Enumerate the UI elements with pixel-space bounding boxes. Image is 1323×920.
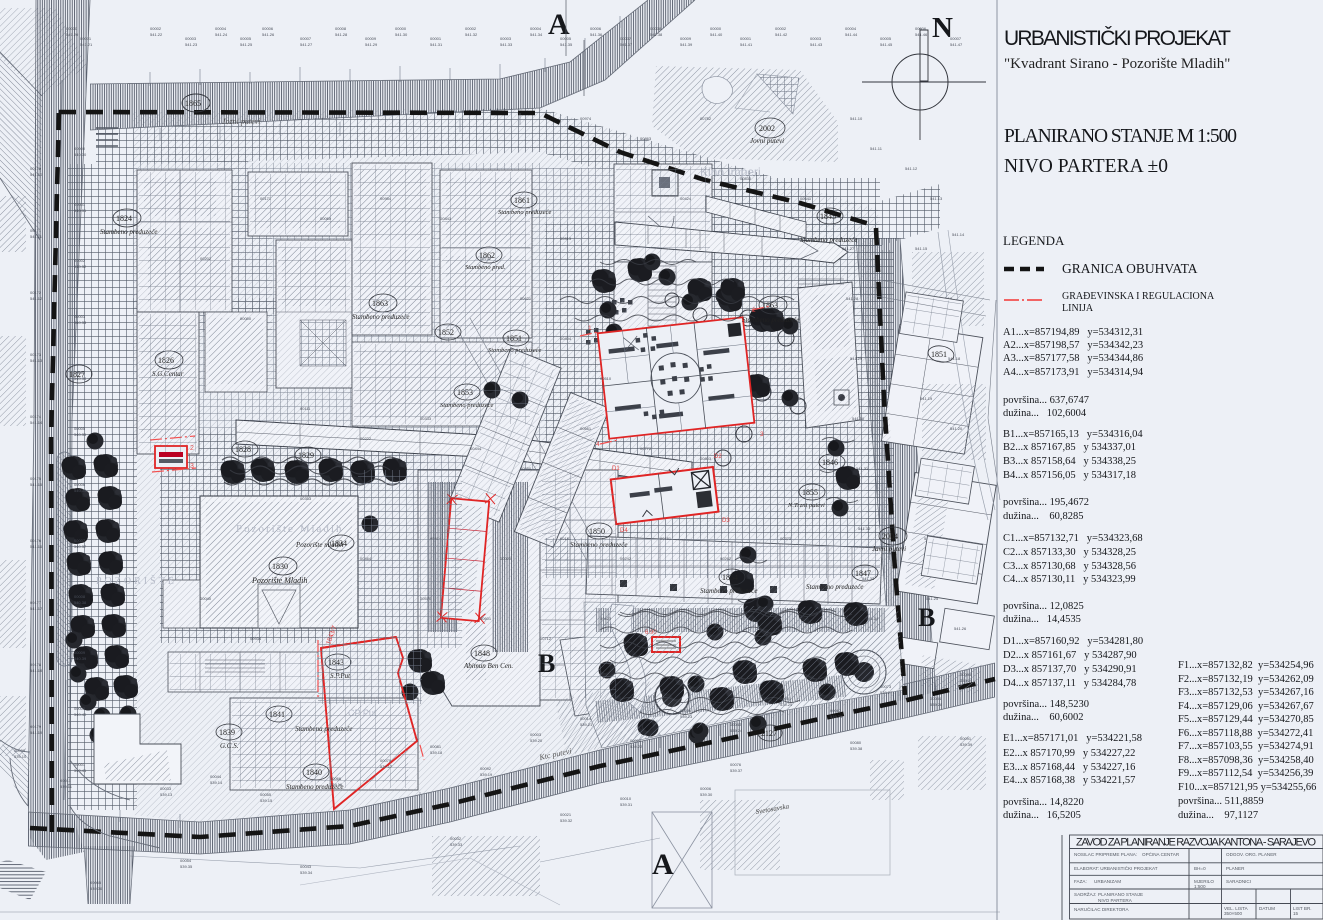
- svg-text:541.27: 541.27: [842, 246, 855, 251]
- svg-text:2004: 2004: [882, 532, 898, 541]
- svg-text:Stambeno preduzeće: Stambeno preduzeće: [742, 316, 799, 324]
- svg-text:00008: 00008: [650, 26, 662, 31]
- svg-text:3: 3: [760, 431, 764, 438]
- svg-text:00076: 00076: [730, 762, 742, 767]
- svg-text:00173: 00173: [30, 352, 42, 357]
- svg-text:1846: 1846: [822, 458, 838, 467]
- svg-text:00040: 00040: [200, 596, 212, 601]
- svg-text:DATUM: DATUM: [1259, 906, 1275, 911]
- svg-text:541.29: 541.29: [365, 42, 378, 47]
- svg-text:539.32: 539.32: [560, 818, 573, 823]
- svg-text:00004: 00004: [215, 26, 227, 31]
- svg-text:00178: 00178: [30, 662, 42, 667]
- svg-text:D3: D3: [722, 518, 730, 524]
- svg-text:539.21: 539.21: [580, 722, 593, 727]
- svg-text:00550: 00550: [520, 466, 532, 471]
- svg-text:površina... 637,6747: površina... 637,6747: [1003, 395, 1089, 406]
- svg-text:PLANIRANO STANJE M 1:500: PLANIRANO STANJE M 1:500: [1004, 126, 1237, 147]
- svg-text:539.39: 539.39: [960, 742, 973, 747]
- svg-text:F10...x=857121,95 y=534255,66: F10...x=857121,95 y=534255,66: [1178, 782, 1316, 793]
- svg-text:B3...x 857158,64 y 534338,25: B3...x 857158,64 y 534338,25: [1003, 456, 1136, 467]
- svg-text:"Kvadrant Sirano - Pozorište M: "Kvadrant Sirano - Pozorište Mladih": [1004, 56, 1230, 72]
- svg-text:00006: 00006: [262, 26, 274, 31]
- svg-text:539.30: 539.30: [700, 792, 713, 797]
- svg-text:LINIJA: LINIJA: [1062, 303, 1094, 314]
- svg-text:541.22: 541.22: [150, 32, 163, 37]
- svg-text:541.10: 541.10: [850, 116, 863, 121]
- svg-text:00171: 00171: [30, 228, 42, 233]
- svg-text:00005: 00005: [74, 426, 86, 431]
- svg-text:541.11: 541.11: [30, 234, 43, 239]
- svg-text:00001: 00001: [430, 36, 442, 41]
- svg-text:SARADNICI: SARADNICI: [1226, 879, 1251, 884]
- svg-text:539.34: 539.34: [300, 870, 313, 875]
- svg-text:00974: 00974: [580, 116, 592, 121]
- svg-text:PLANIRANO STANJE: PLANIRANO STANJE: [1098, 892, 1143, 897]
- svg-text:00008: 00008: [335, 26, 347, 31]
- svg-text:541.35: 541.35: [560, 42, 573, 47]
- svg-text:00007: 00007: [620, 36, 632, 41]
- svg-text:541.26: 541.26: [954, 626, 967, 631]
- svg-text:541.13: 541.13: [930, 196, 943, 201]
- svg-text:FAZA:: FAZA:: [1074, 879, 1087, 884]
- svg-text:Jovni putevi: Jovni putevi: [750, 137, 784, 145]
- svg-text:00009: 00009: [74, 650, 86, 655]
- svg-text:00000: 00000: [240, 316, 252, 321]
- svg-text:B4...x 857156,05 y 534317,18: B4...x 857156,05 y 534317,18: [1003, 470, 1136, 481]
- svg-text:00151: 00151: [660, 536, 672, 541]
- svg-text:541.13: 541.13: [30, 358, 43, 363]
- svg-text:539.24: 539.24: [730, 728, 743, 733]
- svg-text:1848: 1848: [474, 649, 490, 658]
- svg-text:1834: 1834: [331, 539, 347, 548]
- svg-text:B2...x 857167,85 y 534337,01: B2...x 857167,85 y 534337,01: [1003, 442, 1136, 453]
- svg-text:539.19: 539.19: [480, 772, 493, 777]
- svg-text:00003: 00003: [185, 36, 197, 41]
- svg-text:C4...x 857130,11 y 534323,99: C4...x 857130,11 y 534323,99: [1003, 574, 1136, 585]
- svg-text:00641: 00641: [800, 196, 812, 201]
- svg-text:541.27: 541.27: [300, 42, 313, 47]
- svg-text:E3...x 857168,44 y 534227,16: E3...x 857168,44 y 534227,16: [1003, 762, 1135, 773]
- svg-text:GRAĐEVINSKA I REGULACIONA: GRAĐEVINSKA I REGULACIONA: [1062, 291, 1215, 302]
- svg-text:00005: 00005: [560, 36, 572, 41]
- svg-text:F5...x=857129,44 y=534270,85: F5...x=857129,44 y=534270,85: [1178, 714, 1314, 725]
- svg-text:00444: 00444: [470, 446, 482, 451]
- svg-text:1:500: 1:500: [1194, 884, 1206, 889]
- svg-text:F9...x=857112,54 y=534256,39: F9...x=857112,54 y=534256,39: [1178, 768, 1313, 779]
- svg-text:541.15: 541.15: [915, 246, 928, 251]
- svg-text:F2...x=857132,19 y=534262,09: F2...x=857132,19 y=534262,09: [1178, 674, 1314, 685]
- svg-text:541.37: 541.37: [620, 42, 633, 47]
- svg-text:00002: 00002: [74, 258, 86, 263]
- svg-text:NARUČILAC DIREKTORA: NARUČILAC DIREKTORA: [1074, 906, 1129, 912]
- svg-text:539.14: 539.14: [210, 780, 223, 785]
- svg-text:541.28: 541.28: [846, 296, 859, 301]
- svg-text:površina... 14,8220: površina... 14,8220: [1003, 797, 1084, 808]
- svg-text:00863: 00863: [640, 136, 652, 141]
- svg-text:00000: 00000: [74, 146, 86, 151]
- svg-text:00080: 00080: [850, 740, 862, 745]
- svg-text:4: 4: [596, 441, 600, 448]
- svg-text:00055: 00055: [260, 792, 272, 797]
- svg-text:00222: 00222: [360, 436, 372, 441]
- svg-text:00002: 00002: [150, 26, 162, 31]
- svg-text:539.33: 539.33: [450, 842, 463, 847]
- svg-text:540.39: 540.39: [74, 656, 87, 661]
- svg-text:Stambeno preduzeće: Stambeno preduzeće: [800, 236, 857, 244]
- svg-text:ELABORAT: URBANISTIČKI PROJEK: ELABORAT: URBANISTIČKI PROJEKAT: [1074, 865, 1158, 871]
- svg-text:F1...x=857132,82 y=534254,96: F1...x=857132,82 y=534254,96: [1178, 660, 1314, 671]
- svg-text:00011: 00011: [60, 778, 72, 783]
- svg-text:Abimun Ben Cen.: Abimun Ben Cen.: [463, 662, 513, 670]
- svg-text:2002: 2002: [759, 124, 775, 133]
- svg-text:OPĆINA CENTAR: OPĆINA CENTAR: [1142, 851, 1180, 857]
- svg-text:540.36: 540.36: [74, 488, 87, 493]
- svg-text:00006: 00006: [700, 786, 712, 791]
- svg-text:541.33: 541.33: [500, 42, 513, 47]
- svg-text:541.42: 541.42: [775, 32, 788, 37]
- svg-text:00000: 00000: [710, 26, 722, 31]
- svg-text:541.39: 541.39: [680, 42, 693, 47]
- svg-text:541.24: 541.24: [215, 32, 228, 37]
- svg-text:površina... 195,4672: površina... 195,4672: [1003, 497, 1089, 508]
- svg-text:dužina... 14,4535: dužina... 14,4535: [1003, 614, 1081, 625]
- svg-text:541.20: 541.20: [66, 32, 79, 37]
- svg-text:00003: 00003: [74, 314, 86, 319]
- svg-text:00000: 00000: [66, 26, 78, 31]
- svg-text:D2...x 857161,67 y 534287,90: D2...x 857161,67 y 534287,90: [1003, 650, 1137, 661]
- svg-text:541.11: 541.11: [870, 146, 883, 151]
- svg-text:00001: 00001: [740, 36, 752, 41]
- svg-text:541.25: 541.25: [926, 596, 939, 601]
- svg-text:dužina... 102,6004: dužina... 102,6004: [1003, 408, 1087, 419]
- svg-text:541.14: 541.14: [30, 420, 43, 425]
- svg-text:541.44: 541.44: [845, 32, 858, 37]
- svg-text:1851: 1851: [931, 350, 947, 359]
- svg-text:00003: 00003: [810, 36, 822, 41]
- svg-text:PLANER: PLANER: [1226, 866, 1245, 871]
- svg-text:površina... 511,8859: površina... 511,8859: [1178, 796, 1264, 807]
- svg-text:539.37: 539.37: [730, 768, 743, 773]
- svg-text:B1...x=857165,13 y=534316,04: B1...x=857165,13 y=534316,04: [1003, 429, 1143, 440]
- svg-text:00006: 00006: [915, 26, 927, 31]
- svg-text:541.32: 541.32: [858, 526, 871, 531]
- svg-text:1854: 1854: [722, 573, 738, 582]
- svg-text:00373: 00373: [780, 536, 792, 541]
- svg-text:00009: 00009: [365, 36, 377, 41]
- svg-text:00033: 00033: [160, 786, 172, 791]
- svg-text:NIVO PARTERA: NIVO PARTERA: [1098, 898, 1133, 903]
- svg-text:541.25: 541.25: [240, 42, 253, 47]
- svg-text:1845: 1845: [820, 212, 836, 221]
- svg-text:00772: 00772: [640, 446, 652, 451]
- svg-text:539.31: 539.31: [620, 802, 633, 807]
- svg-text:541.46: 541.46: [915, 32, 928, 37]
- svg-text:00111: 00111: [300, 406, 311, 411]
- svg-text:D1: D1: [612, 466, 620, 472]
- svg-text:540.33: 540.33: [74, 320, 87, 325]
- svg-text:00054: 00054: [180, 858, 192, 863]
- svg-text:dužina... 60,6002: dužina... 60,6002: [1003, 712, 1084, 723]
- svg-text:541.12: 541.12: [905, 166, 918, 171]
- svg-text:00000: 00000: [74, 706, 86, 711]
- svg-text:površina... 148,5230: površina... 148,5230: [1003, 699, 1089, 710]
- svg-text:539.15: 539.15: [260, 798, 273, 803]
- svg-text:541.18: 541.18: [948, 356, 961, 361]
- svg-text:00353: 00353: [300, 496, 312, 501]
- svg-text:00084: 00084: [930, 696, 942, 701]
- svg-text:00092: 00092: [480, 766, 492, 771]
- svg-text:541.14: 541.14: [952, 232, 965, 237]
- svg-text:Javni putevi: Javni putevi: [872, 545, 906, 553]
- svg-text:00005: 00005: [240, 36, 252, 41]
- svg-text:00007: 00007: [950, 36, 962, 41]
- svg-text:00661: 00661: [580, 426, 592, 431]
- svg-text:540.38: 540.38: [74, 600, 87, 605]
- svg-text:D2: D2: [714, 454, 722, 460]
- svg-text:A1...x=857194,89 y=534312,31: A1...x=857194,89 y=534312,31: [1003, 327, 1143, 338]
- svg-text:A4...x=857173,91 y=534314,94: A4...x=857173,91 y=534314,94: [1003, 367, 1144, 378]
- svg-text:541.26: 541.26: [262, 32, 275, 37]
- svg-text:C1...x=857132,71 y=534323,68: C1...x=857132,71 y=534323,68: [1003, 533, 1143, 544]
- svg-text:00006: 00006: [74, 482, 86, 487]
- svg-text:dužina... 16,5205: dužina... 16,5205: [1003, 810, 1081, 821]
- svg-text:541.19: 541.19: [30, 730, 43, 735]
- svg-text:00000: 00000: [395, 26, 407, 31]
- svg-text:539.38: 539.38: [850, 746, 863, 751]
- svg-text:2: 2: [752, 307, 756, 314]
- svg-text:541.20: 541.20: [950, 426, 963, 431]
- svg-text:D4...x 857137,11 y 534284,78: D4...x 857137,11 y 534284,78: [1003, 678, 1136, 689]
- svg-text:00007: 00007: [300, 36, 312, 41]
- svg-text:539.26: 539.26: [830, 714, 843, 719]
- svg-text:541.18: 541.18: [30, 668, 43, 673]
- svg-text:F6...x=857118,88 y=534272,41: F6...x=857118,88 y=534272,41: [1178, 728, 1313, 739]
- svg-text:541.36: 541.36: [590, 32, 603, 37]
- svg-text:F7...x=857103,55 y=534274,91: F7...x=857103,55 y=534274,91: [1178, 741, 1314, 752]
- svg-text:ODGOV. ORG. PLANER: ODGOV. ORG. PLANER: [1226, 852, 1277, 857]
- svg-text:POZORIŠTE: POZORIŠTE: [96, 575, 177, 587]
- svg-text:D4: D4: [620, 528, 628, 534]
- svg-text:541.31: 541.31: [430, 42, 443, 47]
- svg-text:ZAVOD ZA PLANIRANJE RAZVOJA KA: ZAVOD ZA PLANIRANJE RAZVOJA KANTONA - SA…: [1076, 837, 1316, 849]
- svg-text:00007: 00007: [74, 538, 86, 543]
- svg-text:00262: 00262: [720, 556, 732, 561]
- svg-text:00601: 00601: [480, 616, 492, 621]
- svg-text:URBANISTIČKI PROJEKAT: URBANISTIČKI PROJEKAT: [1004, 27, 1231, 50]
- svg-text:350×500: 350×500: [1224, 911, 1242, 916]
- svg-text:00179: 00179: [30, 724, 42, 729]
- svg-text:541.15: 541.15: [30, 482, 43, 487]
- svg-text:00004: 00004: [845, 26, 857, 31]
- svg-text:E2...x 857170,99 y 534227,22: E2...x 857170,99 y 534227,22: [1003, 748, 1135, 759]
- svg-text:539.18: 539.18: [430, 750, 443, 755]
- svg-text:540.40: 540.40: [74, 712, 87, 717]
- svg-text:541.33: 541.33: [862, 576, 875, 581]
- svg-text:1830: 1830: [272, 562, 288, 571]
- svg-text:541.30: 541.30: [395, 32, 408, 37]
- svg-text:541.21: 541.21: [80, 42, 93, 47]
- svg-text:541.16: 541.16: [30, 544, 43, 549]
- svg-text:površina... 12,0825: površina... 12,0825: [1003, 601, 1084, 612]
- svg-text:NIVO PARTERA ±0: NIVO PARTERA ±0: [1004, 156, 1168, 177]
- svg-text:1824: 1824: [116, 214, 132, 223]
- svg-text:SADRŽAJ:: SADRŽAJ:: [1074, 890, 1096, 897]
- svg-text:00006: 00006: [590, 26, 602, 31]
- svg-text:15: 15: [1293, 911, 1299, 916]
- svg-text:541.38: 541.38: [650, 32, 663, 37]
- svg-text:00032: 00032: [450, 836, 462, 841]
- svg-text:Stambeno preduzeće: Stambeno preduzeće: [700, 587, 757, 595]
- svg-text:00081: 00081: [430, 744, 442, 749]
- svg-text:00003: 00003: [530, 732, 542, 737]
- svg-text:00002: 00002: [465, 26, 477, 31]
- svg-text:1828: 1828: [235, 445, 251, 454]
- svg-text:GRANICA OBUHVATA: GRANICA OBUHVATA: [1062, 261, 1198, 276]
- svg-text:1863: 1863: [762, 301, 778, 310]
- svg-text:541.43: 541.43: [810, 42, 823, 47]
- svg-text:00752: 00752: [700, 116, 712, 121]
- svg-text:00002: 00002: [775, 26, 787, 31]
- svg-text:00530: 00530: [740, 176, 752, 181]
- svg-text:LEGENDA: LEGENDA: [1003, 233, 1065, 248]
- svg-text:A3...x=857177,58 y=534344,86: A3...x=857177,58 y=534344,86: [1003, 353, 1143, 364]
- svg-text:541.40: 541.40: [710, 32, 723, 37]
- svg-text:540.32: 540.32: [74, 264, 87, 269]
- svg-text:541.45: 541.45: [880, 42, 893, 47]
- svg-text:00021: 00021: [560, 812, 572, 817]
- svg-text:539.13: 539.13: [160, 792, 173, 797]
- svg-text:00008: 00008: [74, 594, 86, 599]
- svg-text:00001: 00001: [74, 202, 86, 207]
- svg-text:540.37: 540.37: [74, 544, 87, 549]
- svg-text:541.29: 541.29: [850, 356, 863, 361]
- svg-text:Pozorište Mladih: Pozorište Mladih: [251, 576, 307, 585]
- svg-text:539.20: 539.20: [530, 738, 543, 743]
- svg-text:541.34: 541.34: [530, 32, 543, 37]
- svg-text:00803: 00803: [700, 456, 712, 461]
- svg-text:541.17: 541.17: [30, 606, 43, 611]
- svg-text:00004: 00004: [74, 370, 86, 375]
- svg-text:URBANIZAM: URBANIZAM: [1094, 879, 1121, 884]
- svg-text:F3...x=857132,53 y=534267,16: F3...x=857132,53 y=534267,16: [1178, 687, 1314, 698]
- svg-text:541.23: 541.23: [185, 42, 198, 47]
- svg-text:E4...x 857168,38 y 534221,57: E4...x 857168,38 y 534221,57: [1003, 775, 1135, 786]
- svg-text:00001: 00001: [74, 762, 86, 767]
- svg-text:541.12: 541.12: [30, 296, 43, 301]
- svg-text:D3...x 857137,70 y 534290,91: D3...x 857137,70 y 534290,91: [1003, 664, 1137, 675]
- svg-text:00091: 00091: [960, 736, 972, 741]
- svg-text:1: 1: [588, 325, 592, 332]
- svg-text:00242: 00242: [620, 556, 632, 561]
- svg-text:539.11: 539.11: [60, 784, 73, 789]
- svg-text:Stambeno preduzeće: Stambeno preduzeće: [806, 583, 863, 591]
- svg-text:00009: 00009: [680, 36, 692, 41]
- svg-text:C3...x 857130,68 y 534328,56: C3...x 857130,68 y 534328,56: [1003, 561, 1136, 572]
- svg-text:00010: 00010: [620, 796, 632, 801]
- svg-text:540.35: 540.35: [74, 432, 87, 437]
- svg-text:1855: 1855: [802, 488, 818, 497]
- svg-text:D1...x=857160,92 y=534281,80: D1...x=857160,92 y=534281,80: [1003, 636, 1143, 647]
- svg-text:00510: 00510: [600, 376, 612, 381]
- svg-text:E1...x=857171,01 y=534221,58: E1...x=857171,01 y=534221,58: [1003, 733, 1142, 744]
- svg-text:BH=0: BH=0: [1194, 866, 1206, 871]
- svg-text:00172: 00172: [30, 290, 42, 295]
- svg-text:541.19: 541.19: [920, 396, 933, 401]
- svg-text:00001: 00001: [80, 36, 92, 41]
- svg-text:00043: 00043: [300, 864, 312, 869]
- svg-text:00174: 00174: [30, 414, 42, 419]
- svg-text:00004: 00004: [530, 26, 542, 31]
- svg-text:NOSILAC PRIPREME PLANA:: NOSILAC PRIPREME PLANA:: [1074, 852, 1137, 857]
- svg-text:1865: 1865: [185, 99, 201, 108]
- svg-text:00934: 00934: [250, 636, 262, 641]
- svg-text:00175: 00175: [30, 476, 42, 481]
- svg-text:00020: 00020: [500, 556, 512, 561]
- svg-text:541.47: 541.47: [950, 42, 963, 47]
- svg-text:00003: 00003: [500, 36, 512, 41]
- svg-text:00044: 00044: [210, 774, 222, 779]
- svg-text:541.28: 541.28: [335, 32, 348, 37]
- svg-text:541.41: 541.41: [740, 42, 753, 47]
- svg-text:540.31: 540.31: [74, 208, 87, 213]
- svg-text:540.30: 540.30: [74, 152, 87, 157]
- svg-text:541.30: 541.30: [852, 416, 865, 421]
- svg-text:00040: 00040: [730, 722, 742, 727]
- svg-text:541.10: 541.10: [30, 172, 43, 177]
- svg-text:00170: 00170: [30, 166, 42, 171]
- svg-text:N.Trzni putevi: N.Trzni putevi: [787, 502, 825, 509]
- svg-text:dužina... 60,8285: dužina... 60,8285: [1003, 511, 1084, 522]
- svg-text:C2...x 857133,30 y 534328,25: C2...x 857133,30 y 534328,25: [1003, 547, 1136, 558]
- svg-text:540.34: 540.34: [74, 376, 87, 381]
- svg-text:539.28: 539.28: [930, 702, 943, 707]
- svg-text:F4...x=857129,06 y=534267,67: F4...x=857129,06 y=534267,67: [1178, 701, 1314, 712]
- svg-text:00313: 00313: [560, 236, 572, 241]
- svg-text:539.35: 539.35: [180, 864, 193, 869]
- svg-text:B: B: [918, 603, 935, 632]
- svg-text:A: A: [652, 848, 674, 881]
- svg-text:539.22: 539.22: [630, 744, 643, 749]
- svg-text:A2...x=857198,57 y=534342,23: A2...x=857198,57 y=534342,23: [1003, 340, 1143, 351]
- svg-text:00177: 00177: [30, 600, 42, 605]
- svg-text:00404: 00404: [560, 336, 572, 341]
- svg-text:Pozorište Mladih: Pozorište Mladih: [236, 523, 343, 535]
- svg-text:00005: 00005: [880, 36, 892, 41]
- svg-text:Jozni putevi: Jozni putevi: [222, 117, 260, 126]
- svg-text:F8...x=857098,36 y=534258,40: F8...x=857098,36 y=534258,40: [1178, 755, 1314, 766]
- svg-text:540.41: 540.41: [74, 768, 87, 773]
- svg-text:541.32: 541.32: [465, 32, 478, 37]
- svg-text:00176: 00176: [30, 538, 42, 543]
- svg-text:dužina... 97,1127: dužina... 97,1127: [1178, 810, 1258, 821]
